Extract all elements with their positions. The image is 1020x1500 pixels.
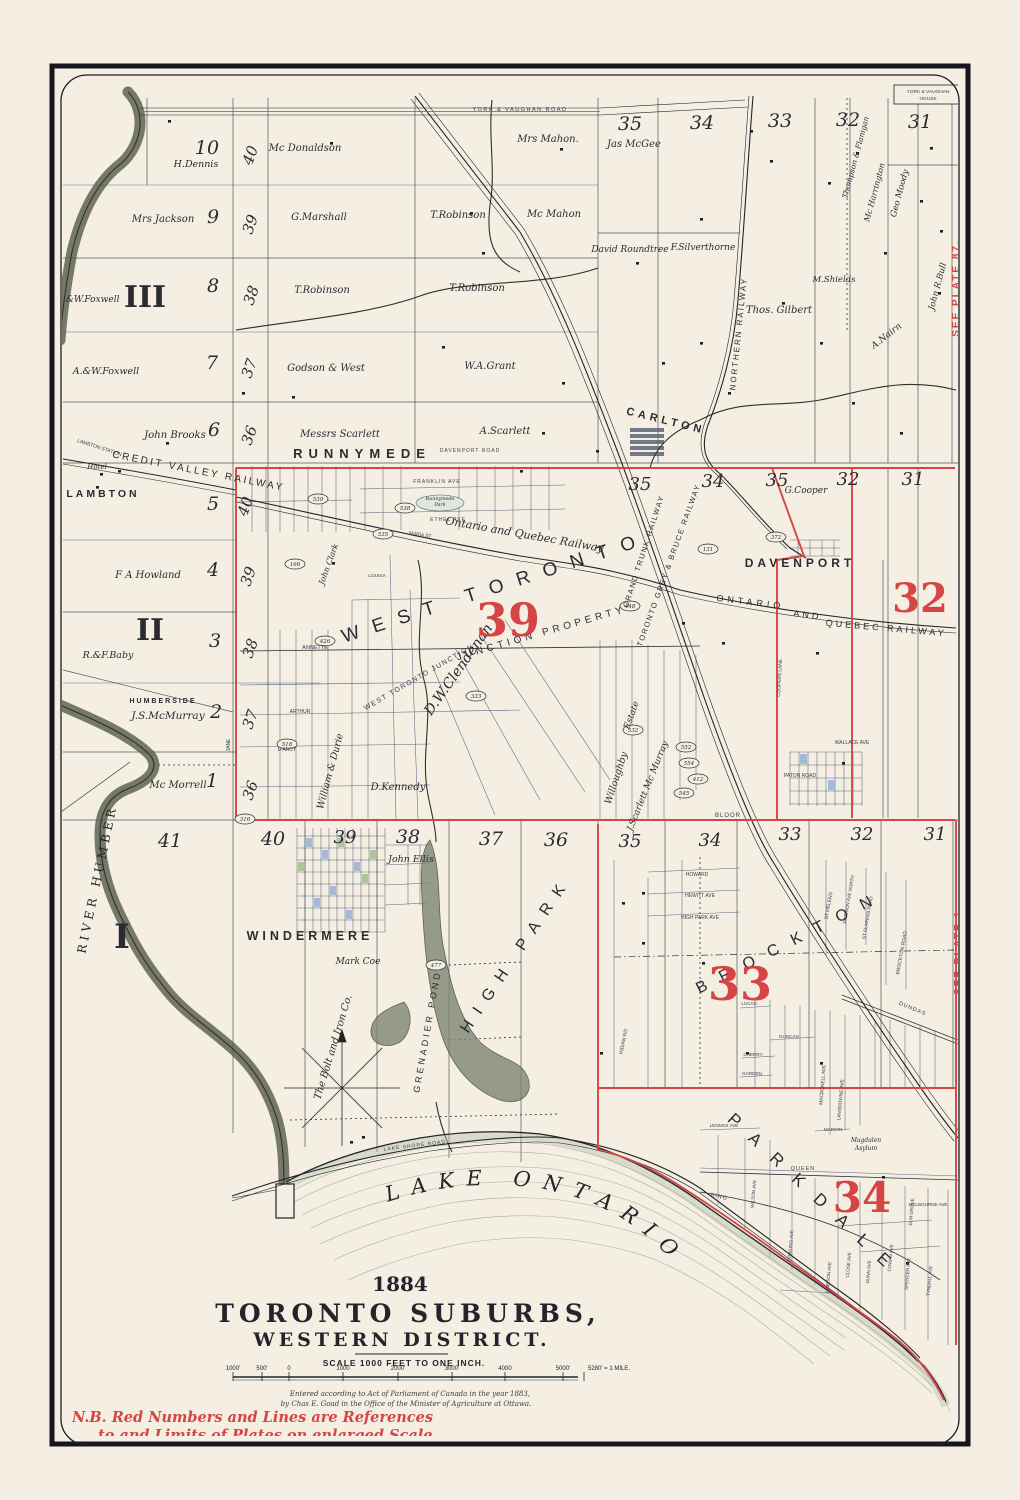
map-label: 34 [699, 830, 722, 851]
lot-number: 166 [290, 562, 301, 568]
map-label: MARION [824, 1127, 842, 1132]
map-label: 35 [629, 474, 652, 495]
scale-tick-label: 1000' [226, 1366, 241, 1372]
map-label: 31 [924, 824, 947, 845]
building-mark [770, 160, 773, 163]
scale-tick-label: 5280' = 1 MILE. [588, 1366, 630, 1372]
map-label: A.&W.Foxwell [56, 295, 120, 305]
lot-number: 412 [692, 777, 704, 783]
map-label: FRANKLIN AVE [413, 479, 460, 485]
map-label: 32 [837, 469, 860, 490]
toronto-suburbs-map: YORK & VAUGHAN HOUSE 5395385351664263165… [0, 0, 1020, 1500]
map-label: Godson & West [287, 363, 366, 374]
building-mark [168, 120, 171, 123]
map-year: 1884 [372, 1272, 428, 1296]
map-label: PATON ROAD [784, 773, 817, 779]
map-label: 36 [544, 829, 568, 851]
lot-number: 538 [400, 506, 411, 512]
building-mark [722, 642, 725, 645]
building-mark [542, 432, 545, 435]
building-mark [700, 218, 703, 221]
building-mark [920, 200, 923, 203]
map-label: Messrs Scarlett [299, 429, 381, 440]
map-label: III [124, 280, 166, 315]
map-label: T.Robinson [294, 285, 350, 296]
corner-house-box: YORK & VAUGHAN HOUSE [894, 85, 964, 104]
map-label: Mrs Mahon. [516, 134, 579, 145]
map-label: 33 [708, 957, 772, 1011]
map-canvas: YORK & VAUGHAN HOUSE 5395385351664263165… [0, 0, 1020, 1500]
map-label: ANNETTE [302, 645, 328, 651]
map-label: G.Cooper [785, 486, 829, 496]
map-page: { "colors": { "red": "#d64545", "ink": "… [0, 0, 1020, 1500]
map-label: 38 [396, 826, 420, 848]
map-label: 10 [195, 137, 219, 159]
map-label: JANE [226, 738, 232, 751]
map-label: H.Dennis [173, 159, 219, 170]
map-label: Hotel [86, 463, 107, 471]
building-mark [560, 148, 563, 151]
map-label: GARDEN [742, 1071, 762, 1076]
map-label: 32 [836, 109, 860, 131]
copyright-line: Entered according to Act of Parliament o… [289, 1390, 530, 1398]
map-label: 34 [833, 1173, 891, 1222]
map-label: 40 [260, 828, 285, 850]
building-mark [728, 392, 731, 395]
map-label: 35 [618, 113, 642, 135]
map-label: Mc Morrell [148, 780, 206, 791]
map-label: Mark Coe [335, 957, 381, 967]
building-mark [166, 442, 169, 445]
map-label: 5 [207, 493, 219, 515]
map-label: WALLACE AVE [835, 740, 870, 746]
building-mark [820, 1062, 823, 1065]
map-subtitle: WESTERN DISTRICT. [252, 1329, 550, 1351]
map-label: 9 [207, 206, 219, 228]
lot-number: 554 [684, 761, 695, 767]
map-label: HUMBERSIDE [129, 698, 196, 705]
map-label: G.Marshall [291, 212, 347, 223]
map-label: Runnymede [425, 496, 455, 502]
map-label: 32 [851, 824, 874, 845]
map-label: 41 [157, 830, 182, 852]
building-mark [930, 147, 933, 150]
building-mark [642, 892, 645, 895]
map-label: LAMBTON [66, 488, 139, 500]
map-label: HEWITT AVE [685, 893, 715, 899]
building-mark [350, 1141, 353, 1144]
lot-number: 539 [313, 497, 324, 503]
building-mark [682, 622, 685, 625]
building-mark [852, 402, 855, 405]
map-label: David Roundtree [590, 245, 668, 255]
building-mark [884, 252, 887, 255]
lot-number: 477 [430, 963, 442, 969]
map-label: 2 [209, 701, 222, 723]
scale-tick-label: 1000 [336, 1366, 350, 1372]
map-label: 1 [206, 770, 218, 792]
map-label: Mrs Jackson [131, 214, 195, 225]
map-title: TORONTO SUBURBS, [215, 1299, 600, 1328]
building-mark [442, 346, 445, 349]
map-label: HIGH PARK AVE [681, 915, 720, 921]
building-mark [842, 762, 845, 765]
map-label: A.&W.Foxwell [72, 366, 139, 377]
map-label: 34 [690, 112, 714, 134]
map-label: 34 [702, 471, 725, 492]
building-mark [820, 342, 823, 345]
map-label: J.S.McMurray [129, 710, 205, 722]
lot-number: 316 [240, 817, 251, 823]
map-label: RUNNYMEDE [293, 446, 431, 461]
map-label: 4 [206, 559, 219, 581]
building-mark [242, 392, 245, 395]
map-label: Jas McGee [605, 139, 661, 150]
building-mark [662, 362, 665, 365]
note-line: N.B. Red Numbers and Lines are Reference… [71, 1409, 433, 1426]
lot-number: 535 [378, 532, 389, 538]
map-label: John Ellis [386, 854, 434, 865]
lot-number: 131 [703, 547, 714, 553]
map-label: 31 [902, 469, 925, 490]
building-mark [100, 473, 103, 476]
building-mark [828, 182, 831, 185]
copyright-line: by Chas E. Goad in the Office of the Min… [281, 1400, 532, 1408]
map-label: Park [433, 502, 445, 508]
map-label: D.Kennedy [370, 782, 426, 793]
map-label: 33 [768, 110, 792, 132]
map-label: Thos. Gilbert [746, 305, 813, 316]
map-label: F A Howland [114, 570, 181, 581]
building-mark [816, 652, 819, 655]
scale-tick-label: 500' [256, 1366, 267, 1372]
building-mark [642, 942, 645, 945]
map-label: 39 [476, 593, 540, 647]
map-label: 7 [206, 352, 219, 374]
corner-house-label: HOUSE [919, 96, 936, 102]
map-label: F.Silverthorne [670, 243, 736, 253]
map-label: R.&F.Baby [82, 650, 134, 661]
building-mark [900, 432, 903, 435]
corner-house-label: YORK & VAUGHAN [907, 89, 950, 95]
map-label: 35 [619, 831, 642, 852]
map-label: John Brooks [142, 430, 205, 441]
building-mark [118, 470, 121, 473]
scale-tick-label: 4000 [498, 1366, 512, 1372]
map-label: BLOOR [715, 813, 741, 819]
scale-tick-label: 5000' [556, 1366, 571, 1372]
building-mark [292, 396, 295, 399]
building-mark [702, 962, 705, 965]
map-label: I [114, 917, 130, 957]
scale-tick-label: 2000' [391, 1366, 406, 1372]
building-mark [622, 902, 625, 905]
map-label: D'ARCY [278, 747, 297, 753]
map-label: 32 [892, 575, 948, 622]
map-label: LUCAS [741, 1001, 756, 1006]
building-mark [596, 450, 599, 453]
lot-number: 333 [471, 694, 482, 700]
scale-tick-label: 3000' [445, 1366, 460, 1372]
map-label: YORK & VAUGHAN ROAD [472, 107, 567, 113]
map-label: HOWARD [686, 872, 709, 878]
map-label: DAVENPORT ROAD [440, 448, 500, 454]
building-mark [940, 230, 943, 233]
building-mark [700, 342, 703, 345]
map-label: 31 [908, 111, 932, 133]
map-label: LOUISA [368, 573, 386, 579]
map-label: 37 [479, 828, 504, 850]
building-mark [750, 130, 753, 133]
building-mark [636, 262, 639, 265]
map-label: ARTHUR [290, 709, 311, 715]
map-label: Magdalen [850, 1137, 881, 1144]
building-mark [562, 382, 565, 385]
map-label: CHERRY [743, 1052, 762, 1057]
map-label: Asylum [854, 1145, 878, 1152]
building-mark [600, 1052, 603, 1055]
building-mark [520, 470, 523, 473]
map-label: DAVENPORT [745, 556, 855, 570]
map-label: II [136, 613, 164, 648]
map-label: A.Scarlett [479, 426, 532, 437]
lot-number: 552 [681, 745, 692, 751]
map-label: Mc Donaldson [268, 143, 342, 154]
map-label: 8 [207, 275, 219, 297]
map-label: Mc Mahon [526, 209, 581, 220]
map-label: 39 [334, 827, 357, 848]
map-label: 33 [779, 824, 802, 845]
map-label: 3 [209, 630, 221, 652]
map-label: 6 [208, 419, 220, 441]
map-label: T.Robinson [449, 283, 505, 294]
map-label: T.Robinson [430, 210, 486, 221]
map-label: M.Shields [812, 275, 857, 285]
map-label: WINDERMERE [247, 929, 374, 943]
building-mark [482, 252, 485, 255]
map-label: DUNCAN [779, 1034, 799, 1039]
lot-number: 372 [771, 535, 782, 541]
building-mark [362, 1136, 365, 1139]
lot-number: 545 [679, 791, 690, 797]
map-label: W.A.Grant [464, 361, 516, 372]
